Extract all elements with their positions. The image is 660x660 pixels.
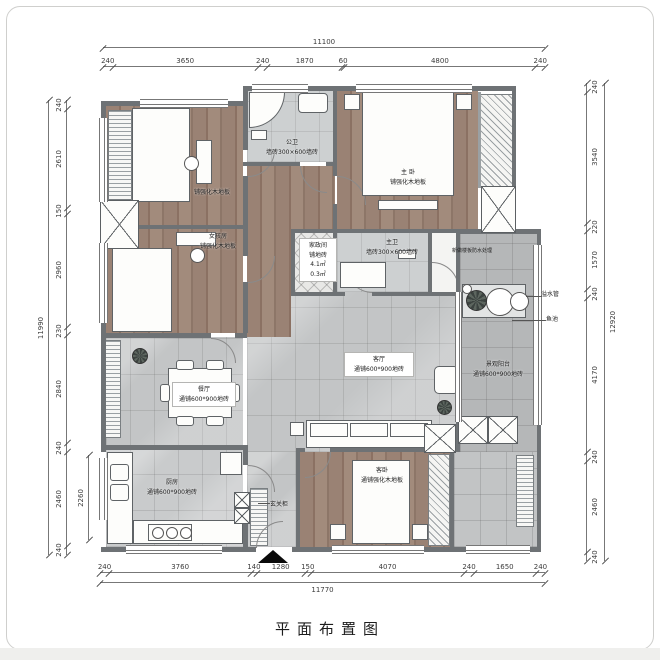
window [99,243,108,323]
dim-left-overall: 11990 [48,100,49,555]
overflow-pipe-label: 溢水管 [541,290,559,300]
wall [243,282,248,333]
room-name: 女孩房 [209,233,227,240]
shaft [424,424,456,453]
wall [333,86,337,176]
window [332,545,424,554]
wall [428,229,432,296]
kitchen-label: 厨房 通铺600*900地砖 [140,478,204,497]
vanity-counter [340,262,386,288]
window [252,84,308,93]
annotation-text: 溢水管 [541,291,559,298]
master-bath-label: 主卫 墙砖300×600墙砖 [356,238,428,257]
plant [437,400,452,415]
wall [456,232,460,292]
room-floor: 通铺强化木地板 [361,477,403,484]
flue-shaft [234,508,250,524]
wall [296,448,300,552]
room-floor: 铺强化木地板 [200,243,236,250]
room-floor: 通铺600*900地砖 [179,396,229,403]
bedroom-top-label: 铺强化木地板 [176,188,248,198]
leader-line [526,296,542,297]
burner [166,527,178,539]
dim-top-overall: 11100 [103,47,545,48]
wall [243,162,300,166]
window [99,458,108,520]
balcony-label: 景观阳台 通铺600*900地砖 [462,360,534,379]
wall [450,452,454,552]
room-name: 主卫 [386,239,398,246]
dining-chair [176,360,194,370]
public-bath-label: 公卫 墙砖300×600墙砖 [256,138,328,157]
wall [101,445,248,450]
bed [112,248,172,332]
guest-wardrobe [428,454,450,546]
room-name: 客厅 [373,356,385,363]
sideboard-cabinet [105,340,121,438]
wall [247,547,256,552]
sink-bowl [110,464,129,481]
fish-pond-label: 鱼池 [546,315,558,325]
pond-circle [510,292,529,311]
plant [132,348,148,364]
dim-left-inner: 2260 [88,455,89,540]
window [533,245,542,425]
master-wardrobe [480,94,514,188]
utility-label: 家政间 铺地砖 4.1㎡ 0.3㎡ [299,238,337,282]
utility-name: 家政间 [309,242,327,249]
wall [235,333,247,338]
washbasin [298,93,328,113]
fridge [220,452,242,475]
wall [537,229,541,245]
utility-counter [516,455,534,527]
sofa-cushion [310,423,348,437]
room-floor: 通铺600*900地砖 [354,366,404,373]
dim-right-segments: 2403540220157024041702402460240 [586,83,587,561]
room-floor: 墙砖300×600墙砖 [266,149,318,156]
dining-chair [176,416,194,426]
room-floor: 铺强化木地板 [390,179,426,186]
wardrobe [108,110,132,200]
room-floor: 墙砖300×600墙砖 [366,249,418,256]
annotation-text: 鱼池 [546,316,558,323]
room-floor: 通铺600*900地砖 [147,489,197,496]
dim-top-segments: 24036502401870604800240 [103,66,545,67]
window [99,118,108,202]
dining-label: 餐厅 通铺600*900地砖 [172,382,236,407]
bedroom-girl-label: 女孩房 铺强化木地板 [182,232,254,251]
shaft [481,186,516,233]
utility-l2: 铺地砖 [309,252,327,259]
leader-line [258,503,270,504]
pond-flower [462,284,472,294]
wall [243,445,248,465]
burner [180,527,192,539]
window [126,545,222,554]
dim-left-segments: 2402610150296023028402402460240 [66,100,67,555]
room-name: 主 卧 [401,169,415,176]
dryer [488,416,518,444]
dining-chair [160,384,170,402]
living-label: 客厅 通铺600*900地砖 [344,352,414,377]
dim-right-overall: 12920 [604,83,605,561]
sofa-cushion [390,423,428,437]
dim-bottom-segments: 2403760140128015040702401650240 [100,572,545,573]
washer [458,416,488,444]
side-table [290,422,304,436]
sink-bowl [110,484,129,501]
entry-arrow-icon [258,550,288,563]
nightstand [456,94,472,110]
window [466,545,530,554]
wall [537,425,541,552]
wall [101,333,211,338]
wall [372,292,460,296]
flue-shaft [234,492,250,508]
burner [152,527,164,539]
elevator-shaft [100,200,139,249]
nightstand [330,524,346,540]
annotation-text: 新做楼板防水处理 [452,248,492,254]
utility-l4: 0.3㎡ [310,271,326,278]
dim-bottom-overall: 11770 [100,582,545,583]
nightstand [344,94,360,110]
bedroom-top-floor-label: 铺强化木地板 [194,189,230,196]
waterproof-note: 新做楼板防水处理 [452,247,492,254]
wall [291,292,345,296]
room-name: 景观阳台 [486,361,510,368]
sofa-cushion [350,423,388,437]
utility-l3: 4.1㎡ [310,261,326,268]
chair [184,156,199,171]
master-bedroom-label: 主 卧 铺强化木地板 [372,168,444,187]
window [356,84,472,93]
room-name: 客卧 [376,467,388,474]
leader-line [512,320,546,321]
dining-chair [206,416,224,426]
annotation-text: 玄关柜 [270,501,288,508]
nightstand [412,524,428,540]
wall [291,229,295,292]
plan-title: 平面布置图 [0,618,660,639]
room-name: 餐厅 [198,386,210,393]
bed-bench [378,200,438,210]
room-floor: 通铺600*900地砖 [473,371,523,378]
window [140,99,228,108]
floor-plan: 家政间 铺地砖 4.1㎡ 0.3㎡ 铺强化木地板 [0,0,660,660]
wall [478,92,481,188]
room-name: 厨房 [166,479,178,486]
room-name: 公卫 [286,139,298,146]
guest-bedroom-label: 客卧 通铺强化木地板 [346,466,418,485]
wall [243,101,248,150]
balcony-sliding-window [455,292,462,422]
entry-cabinet-label: 玄关柜 [270,500,288,510]
dining-chair [206,360,224,370]
bottom-strip [0,648,660,660]
